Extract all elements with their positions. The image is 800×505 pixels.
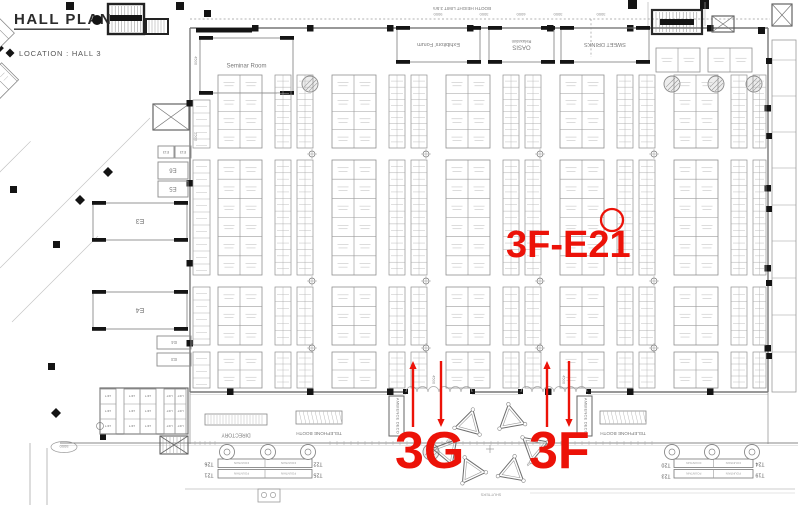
table-label: T21 [204,471,213,477]
directory-label: DIRECTORY [221,432,251,438]
room-exhibitors-forum: Exhibitors' Forum [396,26,481,64]
dimension-label: 3000 [596,12,606,17]
red-annotations: 3F-E213G3F [395,209,631,480]
table-label: T19 [755,471,764,477]
table-label: T23 [661,472,670,478]
plan-label: OASIS [512,44,530,50]
room-e3: E3 [157,353,191,366]
right-corridor-rooms [766,40,796,392]
plan-label: E3 [171,357,177,362]
plan-label: LIFT [177,394,183,398]
lift-bank: LIFTLIFTLIFTLIFTLIFTLIFTLIFTLIFTLIFTLIFT… [100,388,188,434]
red-arrow-down [437,361,444,427]
room-e13: E13 [158,146,174,158]
room-e3: E3 [92,201,188,242]
plan-label: LIFT [145,394,151,398]
table-label: T26 [204,460,213,466]
column-dot [92,15,102,25]
telephone-booth: TELEPHONE BOOTH [600,411,646,436]
table-label: T24 [755,460,764,466]
room-oasis: RelaxationOASIS [488,26,555,64]
plan-label: Seminar Room [226,64,266,70]
plan-label: E4 [136,306,145,313]
room-e6: E6 [158,162,188,179]
plan-label: Relaxation [511,39,531,44]
plan-label: FOUNTAIN [281,471,296,475]
dimension-label: 3000 [553,12,563,17]
red-arrow-down [565,361,572,427]
plan-label: FOUNTAIN [726,461,741,465]
plan-label: LIFT [166,394,172,398]
table-label: T22 [313,460,322,466]
plan-label: FOUNTAIN [281,461,296,465]
room-e4: E4 [92,290,188,331]
plan-label: LIFT [129,409,135,413]
booth-id-callout: 3F-E21 [506,224,631,266]
plan-label: LIFT [105,394,111,398]
dimension-label: 9000 [433,12,443,17]
plan-label: E4 [171,340,177,345]
plan-label: FOUNTAIN [726,471,741,475]
table-label: T25 [313,471,322,477]
plan-label: LIFT [105,424,111,428]
room-sweet-drinks: SWEET DRINKS [560,26,650,64]
service-cart [258,489,280,502]
plan-label: E13 [180,150,186,154]
curtain-scallops [406,387,472,393]
red-arrow-up [409,361,416,427]
plan-label: LIFT [145,424,151,428]
room-e4: E4 [157,336,191,349]
directory-stand: DIRECTORY [205,414,267,438]
dimension-label: 4500 [194,56,199,66]
telephone-booth-label: TELEPHONE BOOTH [296,431,341,436]
plan-label: LIFT [105,409,111,413]
telephone-booth: TELEPHONE BOOTH [296,411,342,436]
zone-label-3f: 3F [529,422,590,480]
plan-label: LIFT [166,409,172,413]
plan-label: SWEET DRINKS [584,41,626,47]
plan-label: E13 [163,150,169,154]
dimension-label: 2500 [194,132,199,142]
plan-label: Exhibitors' Forum [417,41,460,47]
plan-label: E5 [169,185,177,191]
dimension-label: 6000 [516,12,526,17]
diagonal-rooms [0,0,94,262]
plan-label: E3 [136,217,145,224]
dimension-label: 5000 [59,444,69,449]
limit-note: BOOTH HEIGHT LIMIT 3.5m [433,6,491,11]
plan-label: FOUNTAIN [686,461,701,465]
plan-label: FOUNTAIN [234,461,249,465]
plan-label: LIFT [129,424,135,428]
location-label: LOCATION : HALL 3 [19,49,101,58]
floor-plan: SHUTTERS90003000600030003000500045004500… [0,0,800,505]
zone-label-3g: 3G [395,422,464,480]
plan-label: E6 [169,166,177,172]
plan-label: LIFT [177,409,183,413]
dimension-label: 3000 [479,12,489,17]
telephone-booth-label: TELEPHONE BOOTH [600,431,645,436]
room-e13: E13 [175,146,191,158]
plan-label: FOUNTAIN [686,471,701,475]
plan-label: LIFT [129,394,135,398]
plan-label: LIFT [145,409,151,413]
stairs [160,436,188,454]
table-label: T20 [661,461,670,467]
shutters-label: SHUTTERS [480,492,501,496]
floor-plan-canvas: SHUTTERS90003000600030003000500045004500… [0,0,800,505]
dimension-label: 4500 [432,375,437,385]
plan-label: FOUNTAIN [234,471,249,475]
booth-grid [193,48,766,388]
curtain-scallops [521,387,587,393]
room-e5: E5 [158,181,188,197]
plan-label: LIFT [177,424,183,428]
plan-label: LIFT [166,424,172,428]
dimension-label: 4500 [562,375,567,385]
